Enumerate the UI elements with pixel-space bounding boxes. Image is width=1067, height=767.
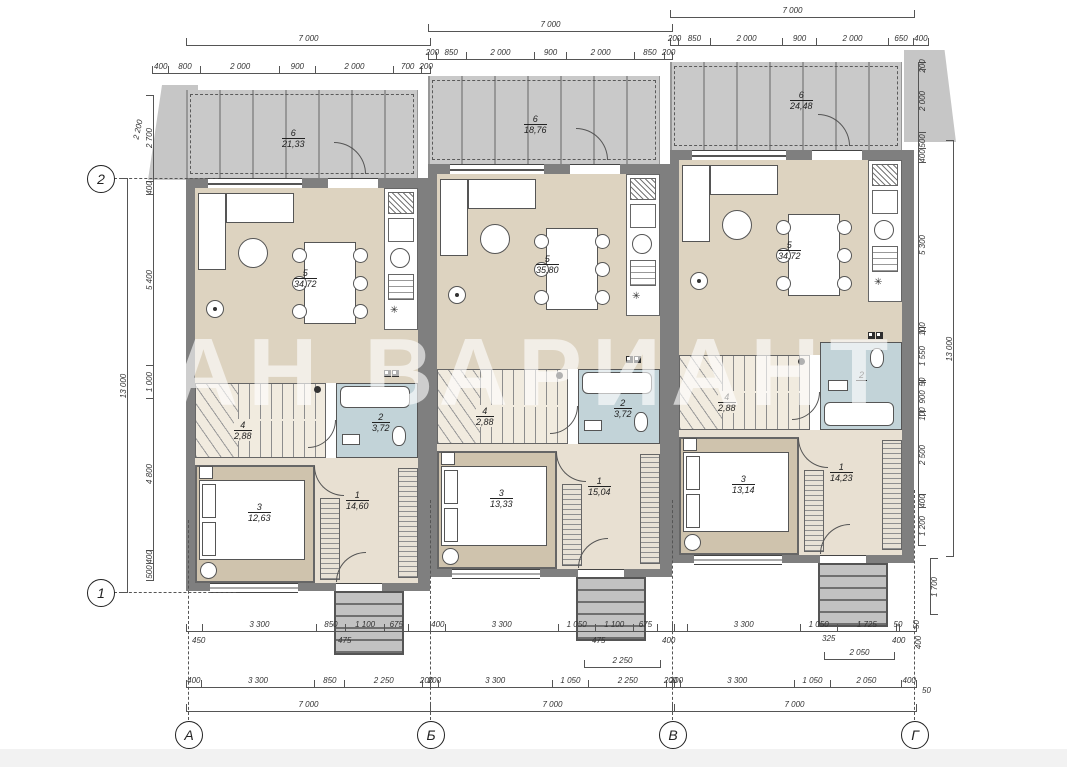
toilet — [634, 412, 648, 432]
dim-label: 5 400 — [146, 270, 154, 290]
room-area: 13,33 — [490, 499, 513, 509]
stove — [630, 178, 656, 200]
pillow — [686, 456, 700, 490]
dim-label: 3 300 — [492, 621, 512, 629]
coffee-table — [238, 238, 268, 268]
room-area: 15,04 — [588, 487, 611, 497]
dim-total-u1: 7 000 — [186, 704, 431, 712]
sink — [342, 434, 360, 445]
axis-line-2 — [114, 178, 218, 179]
bath-door-arc — [792, 392, 820, 420]
dim-label: 850 — [688, 35, 701, 43]
dim-label: 13 000 — [120, 373, 128, 397]
coffee-table — [722, 210, 752, 240]
bath-door-arc — [550, 406, 578, 434]
dim-label: 400 — [146, 182, 154, 195]
room-area: 2,88 — [234, 431, 252, 441]
room-number: 2 — [856, 370, 867, 381]
dim-total-left: 13 000 — [120, 178, 128, 593]
room-area: 18,76 — [524, 125, 547, 135]
sheet-bottom-strip — [0, 749, 1067, 767]
dim-chain-bot1-u1: 3 300 850 1 100 675 — [186, 624, 431, 632]
axis-line-a — [188, 520, 189, 720]
dim-label: 50 — [922, 686, 931, 695]
axis-label: 1 — [97, 585, 105, 601]
stair-arrow-dot — [798, 358, 805, 365]
room-number: 2 — [614, 398, 632, 409]
dim-label: 200 — [662, 49, 675, 57]
pillow — [202, 484, 216, 518]
room-area: 35,80 — [536, 265, 559, 275]
chair — [534, 290, 549, 305]
dim-chain-left: 2 700 400 5 400 1 000 4 800 400 500 — [146, 95, 154, 581]
dim-chain-bot2-u3: 200 3 300 1 050 2 050 400 — [672, 680, 917, 688]
dim-mid-u2: 2 250 — [584, 660, 661, 668]
dim-label: 400 — [919, 494, 927, 507]
chair — [595, 262, 610, 277]
dim-label: 400 — [919, 149, 927, 162]
dim-label: 2 000 — [737, 35, 757, 43]
room-number: 5 — [294, 268, 317, 279]
vent-shaft — [868, 332, 875, 339]
dim-label: 2 000 — [490, 49, 510, 57]
chair — [292, 248, 307, 263]
room-number: 6 — [524, 114, 547, 125]
dim-label: 500 — [919, 134, 927, 147]
nightstand — [683, 438, 697, 451]
dim-label: 2 250 — [618, 677, 638, 685]
kitchen-sink — [632, 234, 652, 254]
dim-chain-top-seg-u3: 200 850 2 000 900 2 000 650 400 — [670, 38, 929, 46]
vent-shaft — [876, 332, 883, 339]
dim-total-right: 13 000 — [946, 140, 954, 557]
axis-bubble-v: В — [659, 721, 687, 749]
vent-shaft — [384, 370, 391, 377]
dim-label: 850 — [444, 49, 457, 57]
lamp-dot — [213, 307, 217, 311]
axis-bubble-a: А — [175, 721, 203, 749]
dim-label: 1 000 — [146, 372, 154, 392]
dim-label: 400 — [892, 636, 905, 645]
bathtub — [824, 402, 894, 426]
pillow — [444, 508, 458, 542]
chair — [595, 234, 610, 249]
dim-chain-top-total-u1: 7 000 — [186, 38, 431, 46]
dim-label: 650 — [894, 35, 907, 43]
wardrobe — [562, 484, 582, 566]
dim-label: 2 000 — [344, 63, 364, 71]
oven — [388, 274, 414, 300]
unit-plan-3: 624,48 ✳ 534,72 42,88 — [670, 62, 914, 632]
wardrobe — [882, 440, 902, 550]
dim-chain-bot2-u1: 400 3 300 850 2 250 200 — [186, 680, 431, 688]
dim-label: 850 — [323, 677, 336, 685]
room-area: 2,88 — [476, 417, 494, 427]
dim-label: 2 000 — [919, 91, 927, 111]
laundry-basket — [442, 548, 459, 565]
window — [452, 569, 540, 579]
oven — [630, 260, 656, 286]
dim-label: 3 300 — [727, 677, 747, 685]
chair — [595, 290, 610, 305]
dim-label: 2 000 — [842, 35, 862, 43]
stair-treads — [722, 356, 809, 391]
axis-bubble-g: Г — [901, 721, 929, 749]
dim-label: 7 000 — [784, 701, 804, 709]
vent-shaft — [392, 370, 399, 377]
dim-label: 1 100 — [604, 621, 624, 629]
dim-label: 475 — [338, 636, 351, 645]
entry-porch-steps — [818, 563, 888, 627]
dim-chain-bot1-u2: 400 3 300 1 050 1 100 675 — [430, 624, 675, 632]
dim-total-u3: 7 000 — [672, 704, 917, 712]
laundry-basket — [200, 562, 217, 579]
pillow — [202, 522, 216, 556]
nightstand — [441, 452, 455, 465]
room-number: 4 — [718, 392, 736, 403]
dim-chain-top-total-u3: 7 000 — [670, 10, 915, 18]
fridge-icon: ✳ — [632, 291, 640, 302]
dim-label: 850 — [643, 49, 656, 57]
coffee-table — [480, 224, 510, 254]
dim-label: 400 — [154, 63, 167, 71]
dim-label: 700 — [401, 63, 414, 71]
axis-bubble-b: Б — [417, 721, 445, 749]
dim-total-u2: 7 000 — [430, 704, 675, 712]
dim-label: 7 000 — [298, 35, 318, 43]
dim-label: 400 — [914, 636, 923, 649]
chair — [776, 276, 791, 291]
dim-label: 1 200 — [919, 516, 927, 536]
wardrobe — [398, 468, 418, 578]
window — [694, 555, 782, 565]
dim-label: 2 050 — [856, 677, 876, 685]
dim-label: 400 — [431, 621, 444, 629]
room-area: 14,23 — [830, 473, 853, 483]
room-number: 2 — [372, 412, 390, 423]
room-area: 3,72 — [614, 409, 632, 419]
room-number: 1 — [346, 490, 369, 501]
kitchen-sink — [874, 220, 894, 240]
room-number: 4 — [234, 420, 252, 431]
dim-label: 675 — [390, 621, 403, 629]
dim-label: 2 000 — [230, 63, 250, 71]
stair-winder — [196, 384, 238, 457]
axis-label: Б — [426, 727, 435, 743]
room-number: 5 — [536, 254, 559, 265]
dim-chain-top-seg-u1: 400 800 2 000 900 2 000 700 200 — [152, 66, 431, 74]
room-number: 3 — [490, 488, 513, 499]
sofa — [226, 193, 294, 223]
dim-label: 325 — [822, 634, 835, 643]
bathtub — [582, 372, 652, 394]
room-area: 12,63 — [248, 513, 271, 523]
sofa — [682, 165, 710, 242]
dim-label: 3 300 — [485, 677, 505, 685]
chair — [292, 304, 307, 319]
kitchen-cabinet — [872, 190, 898, 214]
dim-label: 1 050 — [560, 677, 580, 685]
kitchen-sink — [390, 248, 410, 268]
axis-line-1 — [114, 592, 236, 593]
dim-label: 2 050 — [849, 649, 869, 657]
dim-label: 850 — [324, 621, 337, 629]
dim-label: 400 — [146, 550, 154, 563]
sofa — [198, 193, 226, 270]
dim-label: 1 050 — [802, 677, 822, 685]
axis-label: В — [668, 727, 677, 743]
dim-label: 1 050 — [809, 621, 829, 629]
room-area: 14,60 — [346, 501, 369, 511]
axis-line-g — [914, 490, 915, 720]
kitchen-cabinet — [388, 218, 414, 242]
room-area: 34,72 — [294, 279, 317, 289]
fridge-icon: ✳ — [390, 305, 398, 316]
bath-door-arc — [308, 420, 336, 448]
axis-bubble-2: 2 — [87, 165, 115, 193]
dim-label: 7 000 — [298, 701, 318, 709]
room-number: 5 — [778, 240, 801, 251]
lamp-dot — [455, 293, 459, 297]
sofa — [468, 179, 536, 209]
lamp-dot — [697, 279, 701, 283]
chair — [534, 234, 549, 249]
stair-winder — [680, 356, 722, 429]
dim-label: 2 200 — [132, 119, 145, 140]
sink — [584, 420, 602, 431]
dim-mid-u3: 2 050 — [824, 652, 895, 660]
room-area: 21,33 — [282, 139, 305, 149]
stair-treads — [238, 384, 325, 419]
floor-plan-sheet: 2 200 621,33 ✳ 534,72 — [0, 0, 1067, 767]
oven — [872, 246, 898, 272]
nightstand — [199, 466, 213, 479]
dim-label: 1 700 — [931, 576, 939, 596]
unit-plan-1: 621,33 ✳ 534,72 42,88 — [186, 90, 430, 660]
dim-label: 500 — [146, 565, 154, 578]
dim-label: 2 700 — [146, 128, 154, 148]
dim-label: 400 — [914, 35, 927, 43]
kitchen-cabinet — [630, 204, 656, 228]
chair — [837, 248, 852, 263]
room-number: 6 — [282, 128, 305, 139]
room-number: 1 — [588, 476, 611, 487]
dim-label: 3 300 — [734, 621, 754, 629]
terrace: 618,76 — [428, 76, 660, 164]
pillow — [444, 470, 458, 504]
vent-shaft — [634, 356, 641, 363]
chair — [837, 276, 852, 291]
dim-right-ext: 1 700 — [930, 558, 938, 615]
stair-treads — [480, 370, 567, 405]
stove — [388, 192, 414, 214]
sofa — [710, 165, 778, 195]
toilet — [392, 426, 406, 446]
dim-label: 675 — [639, 621, 652, 629]
room-number: 3 — [732, 474, 755, 485]
dim-chain-top-total-u2: 7 000 — [428, 24, 673, 32]
right-exterior-wall — [902, 150, 914, 563]
chair — [837, 220, 852, 235]
laundry-basket — [684, 534, 701, 551]
stair-arrow-dot — [314, 386, 321, 393]
sink — [828, 380, 848, 391]
room-area: 2,88 — [718, 403, 736, 413]
dim-chain-right: 200 2 000 500 400 5 300 100 1 550 50 900… — [918, 62, 926, 546]
axis-line-v — [672, 500, 673, 720]
fridge-icon: ✳ — [874, 277, 882, 288]
axis-label: А — [184, 727, 193, 743]
dim-label: 900 — [291, 63, 304, 71]
toilet — [870, 348, 884, 368]
dim-label: 475 — [592, 636, 605, 645]
dim-label: 5 300 — [919, 235, 927, 255]
dim-label: 7 000 — [782, 7, 802, 15]
dim-label: 900 — [793, 35, 806, 43]
dim-label: 2 250 — [374, 677, 394, 685]
wardrobe — [640, 454, 660, 564]
chair — [353, 304, 368, 319]
dim-label: 400 — [187, 677, 200, 685]
dim-label: 900 — [544, 49, 557, 57]
stair-arrow-dot — [556, 372, 563, 379]
room-number: 3 — [248, 502, 271, 513]
chair — [776, 220, 791, 235]
dim-label: 200 — [419, 63, 432, 71]
room-area: 34,72 — [778, 251, 801, 261]
dim-label: 2 000 — [591, 49, 611, 57]
axis-bubble-1: 1 — [87, 579, 115, 607]
dim-label: 1 050 — [567, 621, 587, 629]
terrace: 621,33 — [186, 90, 418, 178]
chair — [353, 276, 368, 291]
terrace: 624,48 — [670, 62, 902, 150]
dim-label: 3 300 — [249, 621, 269, 629]
axis-label: 2 — [97, 171, 105, 187]
wardrobe — [804, 470, 824, 552]
dim-label: 2 500 — [919, 445, 927, 465]
stair-winder — [438, 370, 480, 443]
dim-label: 4 800 — [146, 464, 154, 484]
dim-label: 1 725 — [857, 621, 877, 629]
dim-chain-bot1-u3: 3 300 1 050 1 725 50 — [672, 624, 917, 632]
dim-label: 13 000 — [946, 336, 954, 360]
unit-plan-2: 618,76 ✳ 535,80 42,88 — [428, 76, 672, 646]
dim-label: 450 — [192, 636, 205, 645]
dim-label: 7 000 — [540, 21, 560, 29]
bathtub — [340, 386, 410, 408]
sofa — [440, 179, 468, 256]
dim-label: 2 250 — [612, 657, 632, 665]
room-area: 3,72 — [372, 423, 390, 433]
axis-label: Г — [911, 727, 919, 743]
wardrobe — [320, 498, 340, 580]
chair — [353, 248, 368, 263]
room-number: 4 — [476, 406, 494, 417]
terrace-deck-outline — [674, 66, 898, 146]
dim-label: 3 300 — [248, 677, 268, 685]
dim-chain-top-seg-u2: 200 850 2 000 900 2 000 850 200 — [428, 52, 673, 60]
room-area: 13,14 — [732, 485, 755, 495]
dim-label: 7 000 — [542, 701, 562, 709]
dim-label: 1 100 — [355, 621, 375, 629]
stove — [872, 164, 898, 186]
room-number: 6 — [790, 90, 813, 101]
room-number: 1 — [830, 462, 853, 473]
axis-line-b — [430, 500, 431, 720]
pillow — [686, 494, 700, 528]
dim-label: 400 — [662, 636, 675, 645]
room-area: 24,48 — [790, 101, 813, 111]
vent-shaft — [626, 356, 633, 363]
dim-label: 900 — [919, 391, 927, 404]
dim-chain-bot2-u2: 200 3 300 1 050 2 250 200 — [430, 680, 675, 688]
dim-label: 1 550 — [919, 346, 927, 366]
dim-label: 800 — [178, 63, 191, 71]
